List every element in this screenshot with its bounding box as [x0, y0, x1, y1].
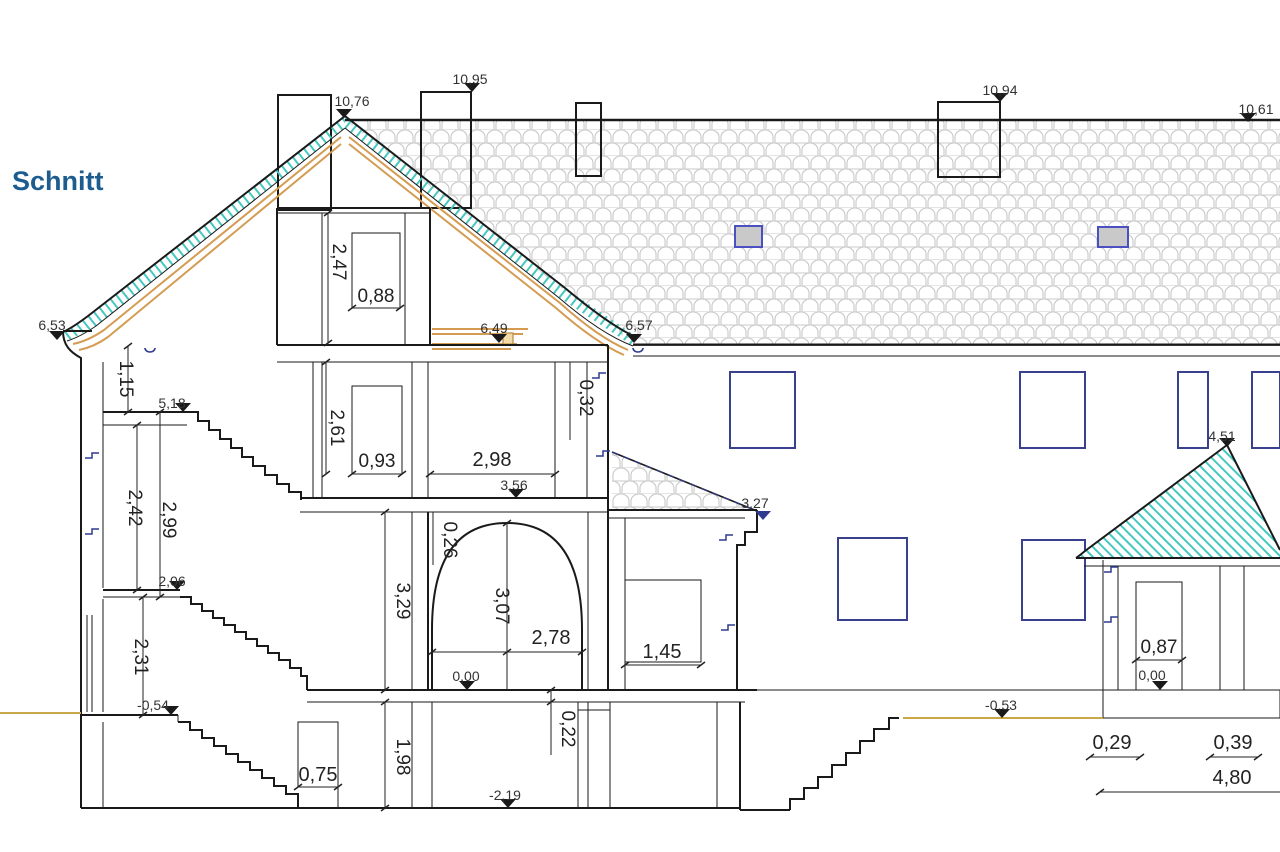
level-label-ridge-gable: 10,76: [334, 93, 369, 109]
drawing-title: Schnitt: [12, 166, 104, 196]
roof-window: [1098, 227, 1128, 247]
section-drawing-sheet: Schnitt 10,76 10,95 10,94 10,61 6,53 6,4…: [0, 0, 1280, 852]
stairs-middle: [180, 597, 307, 690]
facade-window: [838, 538, 907, 620]
dim-ground-room-height: 3,29: [392, 583, 413, 620]
dim-annex-window: 1,45: [643, 641, 682, 663]
dim-arch-width: 2,78: [532, 627, 571, 649]
dim-floor2-window: 0,93: [359, 451, 396, 472]
level-label-basement: -2,19: [489, 787, 521, 803]
level-label-floor2: 3,56: [500, 477, 527, 493]
level-label-eave-right: 6,57: [625, 317, 652, 333]
level-label-entrance: -0,54: [137, 697, 169, 713]
facade-window: [1252, 372, 1280, 448]
level-label-terrain: -0,53: [985, 697, 1017, 713]
level-label-eave-left: 6,53: [38, 317, 65, 333]
dim-entrance-height: 2,31: [130, 639, 151, 676]
dim-stair-a: 2,42: [124, 490, 145, 527]
dim-pavilion-door: 0,87: [1141, 637, 1178, 658]
facade-window: [1020, 372, 1085, 448]
dim-plinth-b: 0,39: [1214, 732, 1253, 754]
dim-slab: 0,32: [575, 380, 596, 417]
level-label-ridge-right: 10,61: [1238, 101, 1273, 117]
dim-basement-height: 1,98: [392, 739, 413, 776]
pavilion-plinth: [1103, 690, 1280, 718]
level-label-pavilion-ground: 0,00: [1138, 667, 1165, 683]
dim-stair-b: 2,99: [158, 502, 179, 539]
pavilion: [1076, 445, 1280, 718]
stairs-exterior: [790, 718, 899, 810]
stairs-upper: [187, 412, 301, 500]
level-label-ground: 0,00: [452, 668, 479, 684]
annex-section: [608, 452, 757, 690]
level-label-landing: 2,06: [158, 573, 185, 589]
level-label-stair-top: 5,18: [158, 395, 185, 411]
facade-window: [730, 372, 795, 448]
dim-floor2-height: 2,61: [326, 410, 347, 447]
dim-attic-height: 2,47: [328, 244, 349, 281]
level-label-pavilion-peak: 4,51: [1208, 428, 1235, 444]
level-label-attic-floor: 6,49: [480, 320, 507, 336]
dim-knee-wall: 1,15: [115, 361, 136, 398]
dim-basement-slab: 0,22: [557, 711, 578, 748]
facade-window: [1178, 372, 1208, 448]
dim-plinth-width: 4,80: [1213, 767, 1252, 789]
dim-attic-window: 0,88: [358, 286, 395, 307]
roof-window: [735, 226, 762, 247]
dim-arch-offset: 0,26: [439, 522, 460, 559]
level-label-chimney: 10,95: [452, 71, 487, 87]
section-drawing: Schnitt 10,76 10,95 10,94 10,61 6,53 6,4…: [0, 0, 1280, 852]
dim-arch-height: 3,07: [491, 588, 512, 625]
stairs-basement: [178, 722, 298, 808]
dim-basement-door: 0,75: [299, 764, 338, 786]
level-label-annex-eave: 3,27: [741, 495, 768, 511]
level-label-chimney-right: 10,94: [982, 82, 1017, 98]
dim-room-width: 2,98: [473, 449, 512, 471]
dim-plinth-a: 0,29: [1093, 732, 1132, 754]
facade-window: [1022, 540, 1085, 620]
